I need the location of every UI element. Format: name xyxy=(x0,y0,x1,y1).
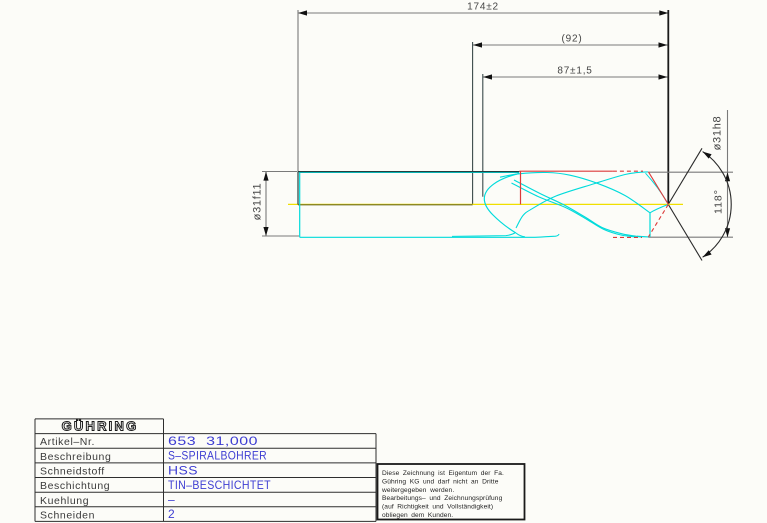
svg-text:ø31f11: ø31f11 xyxy=(252,183,264,221)
svg-text:–: – xyxy=(168,493,175,507)
svg-text:weitergegeben werden.: weitergegeben werden. xyxy=(381,487,454,494)
svg-text:Beschichtung: Beschichtung xyxy=(40,480,110,492)
svg-text:Schneiden: Schneiden xyxy=(40,509,95,521)
svg-text:ø31h8: ø31h8 xyxy=(712,116,724,151)
svg-text:Artikel–Nr.: Artikel–Nr. xyxy=(40,436,95,448)
svg-text:GÜHRING: GÜHRING xyxy=(62,419,139,434)
svg-text:(auf Richtigkeit und Vollständ: (auf Richtigkeit und Vollständigkeit) xyxy=(382,504,493,511)
svg-text:HSS: HSS xyxy=(168,463,198,477)
svg-text:653 31,000: 653 31,000 xyxy=(168,434,258,448)
svg-text:Kuehlung: Kuehlung xyxy=(40,495,89,507)
svg-text:Bearbeitungs– und Zeichnungspr: Bearbeitungs– und Zeichnungsprüfung xyxy=(382,495,503,502)
svg-text:Schneidstoff: Schneidstoff xyxy=(40,466,105,478)
svg-text:174±2: 174±2 xyxy=(467,2,499,13)
svg-text:(92): (92) xyxy=(562,34,583,45)
svg-text:Beschreibung: Beschreibung xyxy=(40,451,111,463)
svg-text:obliegen dem Kunden.: obliegen dem Kunden. xyxy=(382,512,453,519)
svg-text:87±1,5: 87±1,5 xyxy=(557,66,592,77)
svg-text:118°: 118° xyxy=(713,189,725,214)
svg-text:2: 2 xyxy=(168,507,175,521)
svg-text:Diese Zeichnung ist Eigentum d: Diese Zeichnung ist Eigentum der Fa. xyxy=(382,470,504,477)
svg-text:Gühring KG und darf nicht an D: Gühring KG und darf nicht an Dritte xyxy=(382,479,499,486)
svg-text:TIN–BESCHICHTET: TIN–BESCHICHTET xyxy=(168,478,271,492)
svg-text:S–SPIRALBOHRER: S–SPIRALBOHRER xyxy=(168,449,267,463)
